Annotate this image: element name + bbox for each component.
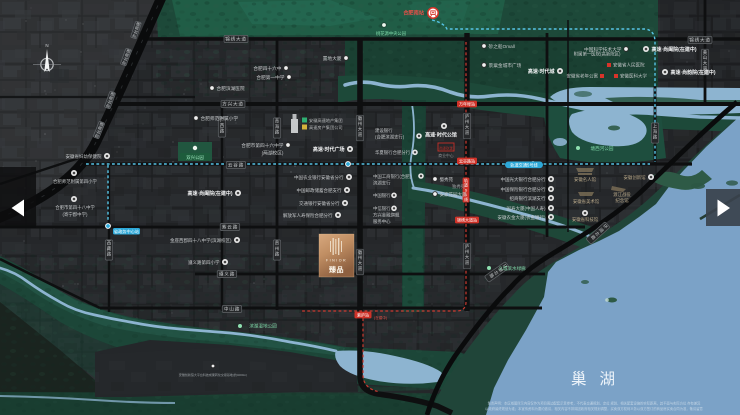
svg-text:中国银行: 中国银行 xyxy=(373,192,391,199)
svg-text:合肥市第四十八中学: 合肥市第四十八中学 xyxy=(55,204,95,211)
svg-text:合肥第一中学: 合肥第一中学 xyxy=(256,74,284,81)
svg-text:上海路: 上海路 xyxy=(653,123,658,141)
svg-text:方兴金融旗舰: 方兴金融旗舰 xyxy=(373,212,400,219)
svg-text:合肥滨湖医院: 合肥滨湖医院 xyxy=(217,85,245,92)
svg-text:尚泽玖珑: 尚泽玖珑 xyxy=(439,145,453,150)
svg-text:交通银行安徽省分行: 交通银行安徽省分行 xyxy=(299,200,340,207)
svg-text:独秀宛: 独秀宛 xyxy=(452,183,466,190)
svg-text:以政府最终规划为准；本宣传资料为要约邀请，相关内容不排除因政: 以政府最终规划为准；本宣传资料为要约邀请，相关内容不排除因政府相关规划调整，买卖… xyxy=(485,406,703,411)
svg-text:紫庐站: 紫庐站 xyxy=(357,312,369,318)
svg-text:省政务中心站: 省政务中心站 xyxy=(114,228,139,235)
svg-text:西藏路: 西藏路 xyxy=(107,241,112,258)
svg-text:(寄宁郡中学): (寄宁郡中学) xyxy=(63,211,88,218)
svg-text:紫云路: 紫云路 xyxy=(222,224,238,231)
svg-text:(合肥滨湖支行): (合肥滨湖支行) xyxy=(375,134,405,141)
svg-text:渡江战役: 渡江战役 xyxy=(613,191,631,198)
svg-text:(两湖校区): (两湖校区) xyxy=(262,150,284,157)
svg-text:高速·时代广场: 高速·时代广场 xyxy=(313,146,345,153)
svg-text:高速·尚阖院(在建中): 高速·尚阖院(在建中) xyxy=(188,190,233,197)
svg-text:建设银行: 建设银行 xyxy=(375,127,393,134)
svg-text:徽州大道: 徽州大道 xyxy=(358,249,363,272)
svg-text:蜀秀苑: 蜀秀苑 xyxy=(440,176,454,183)
svg-text:巢湖: 巢湖 xyxy=(571,370,628,388)
svg-text:招商银行滨湖支行: 招商银行滨湖支行 xyxy=(510,195,546,202)
svg-text:遵义路第四小学: 遵义路第四小学 xyxy=(188,259,220,266)
svg-text:高速房产集团公司: 高速房产集团公司 xyxy=(309,124,343,131)
svg-text:中国光大银行合肥分行: 中国光大银行合肥分行 xyxy=(501,176,546,183)
svg-text:华夏银行合肥分行: 华夏银行合肥分行 xyxy=(375,149,411,156)
svg-text:商业中心: 商业中心 xyxy=(438,153,453,158)
svg-text:遵义路: 遵义路 xyxy=(219,271,235,278)
svg-text:金座西郡四十八中学(滨湖校区): 金座西郡四十八中学(滨湖校区) xyxy=(170,237,232,244)
svg-text:锦绣大道: 锦绣大道 xyxy=(689,37,711,44)
svg-text:(在建中): (在建中) xyxy=(374,315,387,320)
svg-text:合肥市第四十六中学: 合肥市第四十六中学 xyxy=(241,142,284,149)
svg-text:解放军人寿保险合肥分行: 解放军人寿保险合肥分行 xyxy=(283,212,333,219)
svg-text:滨湖支行: 滨湖支行 xyxy=(373,180,391,187)
svg-text:塘西河公园: 塘西河公园 xyxy=(591,145,614,152)
svg-text:置地大厦: 置地大厦 xyxy=(323,55,342,62)
svg-text:安徽省妇幼保健院: 安徽省妇幼保健院 xyxy=(66,153,102,160)
svg-text:附属第一医院(高新院区): 附属第一医院(高新院区) xyxy=(574,51,621,58)
svg-text:景粟金城市广场: 景粟金城市广场 xyxy=(489,62,522,69)
svg-text:中国工商银行(合肥): 中国工商银行(合肥) xyxy=(373,173,412,180)
svg-text:安徽省人民医院: 安徽省人民医院 xyxy=(613,62,645,69)
svg-text:国寿大厦(中国人寿): 国寿大厦(中国人寿) xyxy=(507,205,546,212)
svg-text:纪念馆: 纪念馆 xyxy=(615,197,629,204)
svg-text:安徽名人馆: 安徽名人馆 xyxy=(574,176,597,183)
svg-text:万年埠站: 万年埠站 xyxy=(459,101,475,107)
svg-text:砂之船Omall: 砂之船Omall xyxy=(489,43,515,50)
svg-text:中山路: 中山路 xyxy=(224,306,240,313)
svg-text:云谷路站: 云谷路站 xyxy=(459,158,475,164)
svg-text:合肥师范附属第四小学: 合肥师范附属第四小学 xyxy=(53,178,98,185)
svg-text:安家花园大厦: 安家花园大厦 xyxy=(440,191,467,198)
svg-text:中国邮政储蓄合肥支行: 中国邮政储蓄合肥支行 xyxy=(297,187,342,194)
svg-text:安徽省美术馆: 安徽省美术馆 xyxy=(573,198,600,205)
svg-text:安徽农金大厦(农金银行): 安徽农金大厦(农金银行) xyxy=(498,214,546,221)
svg-text:安徽创新馆大平台科技成果转化交易基地(约4000m): 安徽创新馆大平台科技成果转化交易基地(约4000m) xyxy=(179,372,247,377)
svg-text:中信银行: 中信银行 xyxy=(373,205,391,212)
svg-text:滨湖湿地公园: 滨湖湿地公园 xyxy=(249,323,277,330)
svg-text:高速·时代公馆: 高速·时代公馆 xyxy=(425,132,457,139)
svg-text:贵州路: 贵州路 xyxy=(275,240,280,258)
svg-text:高速·时代城: 高速·时代城 xyxy=(528,68,555,75)
svg-text:双兴公园: 双兴公园 xyxy=(186,154,204,161)
svg-text:高速·尚韵院(在建中): 高速·尚韵院(在建中) xyxy=(671,69,716,76)
svg-text:锦绣大道: 锦绣大道 xyxy=(225,36,247,43)
svg-text:高速·尚阖院(在建中): 高速·尚阖院(在建中) xyxy=(652,46,697,53)
svg-text:锦绣大道站: 锦绣大道站 xyxy=(457,217,477,223)
svg-text:方兴大道: 方兴大道 xyxy=(222,101,244,108)
svg-text:N: N xyxy=(45,43,48,48)
svg-text:中国农业银行安徽省分行: 中国农业银行安徽省分行 xyxy=(294,174,344,181)
svg-text:免责声明：本区域图所示内容仅作为项目周边配套示意参考，不代表: 免责声明：本区域图所示内容仅作为项目周边配套示意参考，不代表交通规划、定位 规划… xyxy=(488,401,702,406)
svg-text:合肥师范附属小学: 合肥师范附属小学 xyxy=(201,115,239,122)
svg-text:FINIOR: FINIOR xyxy=(326,259,347,263)
svg-text:臻品: 臻品 xyxy=(329,265,344,274)
svg-text:青海路: 青海路 xyxy=(275,118,280,136)
svg-text:服务中心: 服务中心 xyxy=(373,218,391,225)
svg-text:云谷路: 云谷路 xyxy=(228,162,244,169)
svg-text:轨道交通5号线: 轨道交通5号线 xyxy=(510,161,538,168)
svg-text:徽州大道: 徽州大道 xyxy=(358,115,363,138)
svg-text:庐州大道: 庐州大道 xyxy=(465,113,470,136)
svg-text:中国保险银行合肥分行: 中国保险银行合肥分行 xyxy=(501,186,546,193)
svg-text:黄山大道: 黄山大道 xyxy=(703,49,708,72)
svg-text:庐州大道: 庐州大道 xyxy=(465,243,470,266)
svg-text:合肥四十六中: 合肥四十六中 xyxy=(253,65,281,72)
svg-text:合肥南站: 合肥南站 xyxy=(403,9,425,17)
svg-text:安徽高速地产集团: 安徽高速地产集团 xyxy=(309,117,343,124)
svg-text:安徽医科大学: 安徽医科大学 xyxy=(620,73,647,80)
svg-text:安徽省科技馆: 安徽省科技馆 xyxy=(572,216,599,223)
svg-text:安徽创新馆: 安徽创新馆 xyxy=(624,174,647,181)
svg-text:义城滨水绿廊: 义城滨水绿廊 xyxy=(498,265,526,272)
svg-text:桃花源中央公园: 桃花源中央公园 xyxy=(376,30,406,37)
svg-text:安徽省老年公寓: 安徽省老年公寓 xyxy=(567,73,599,80)
